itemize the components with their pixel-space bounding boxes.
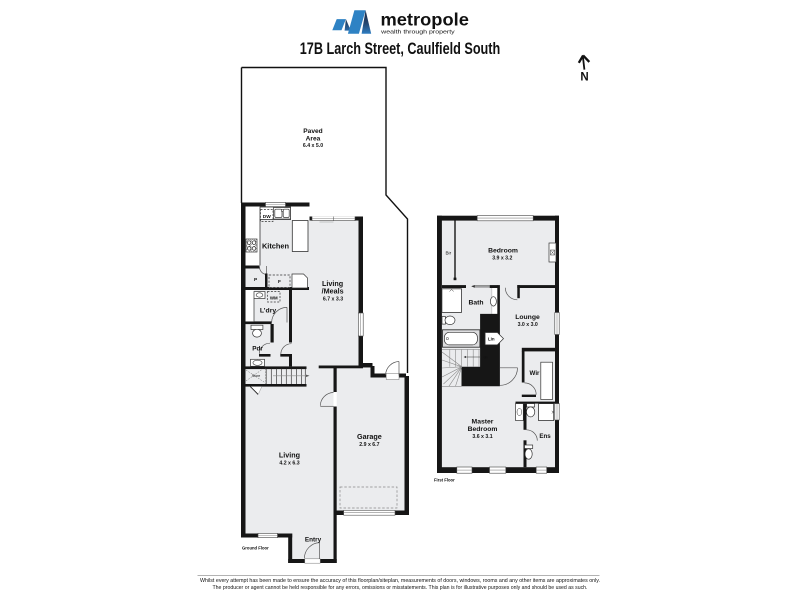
svg-text:metropole: metropole — [381, 10, 470, 30]
svg-text:Area: Area — [306, 135, 321, 142]
svg-text:wealth through property: wealth through property — [380, 30, 455, 36]
svg-text:Garage: Garage — [357, 432, 382, 441]
svg-text:DW: DW — [263, 214, 271, 220]
svg-text:Wir: Wir — [530, 370, 541, 377]
svg-text:dn: dn — [484, 356, 488, 360]
svg-text:Bedroom: Bedroom — [468, 426, 498, 433]
svg-text:Kitchen: Kitchen — [262, 242, 290, 251]
svg-text:2.9 x 6.7: 2.9 x 6.7 — [359, 442, 379, 448]
svg-text:3.0 x 3.0: 3.0 x 3.0 — [518, 322, 538, 328]
svg-text:4.2 x 6.3: 4.2 x 6.3 — [279, 461, 299, 467]
svg-text:Pdr: Pdr — [252, 346, 263, 353]
svg-text:Bath: Bath — [468, 299, 483, 306]
svg-text:Living: Living — [279, 451, 300, 460]
svg-text:3.6 x 3.1: 3.6 x 3.1 — [472, 434, 492, 440]
svg-text:Bir: Bir — [445, 250, 451, 255]
svg-text:6.4 x 5.0: 6.4 x 5.0 — [303, 143, 323, 149]
svg-text:Master: Master — [472, 419, 494, 426]
svg-text:17B Larch Street, Caulfield So: 17B Larch Street, Caulfield South — [300, 40, 501, 58]
svg-text:F: F — [278, 279, 281, 285]
svg-text:6.7 x 3.3: 6.7 x 3.3 — [323, 296, 343, 302]
svg-text:Lounge: Lounge — [515, 314, 540, 321]
svg-text:Whilst every attempt has been: Whilst every attempt has been made to en… — [200, 578, 600, 584]
svg-text:/Meals: /Meals — [322, 286, 344, 295]
svg-text:Ground Floor: Ground Floor — [242, 545, 269, 550]
svg-text:Ens: Ens — [539, 433, 551, 440]
svg-text:Paved: Paved — [303, 128, 322, 135]
svg-text:Entry: Entry — [305, 536, 322, 543]
svg-text:3.9 x 3.2: 3.9 x 3.2 — [492, 256, 512, 262]
svg-text:Store: Store — [252, 374, 261, 378]
svg-text:N: N — [580, 72, 588, 84]
svg-text:Lin: Lin — [488, 337, 495, 342]
svg-text:The producer or agent cannot b: The producer or agent cannot be held res… — [213, 585, 588, 591]
svg-text:WM: WM — [270, 295, 278, 300]
svg-text:L’dry: L’dry — [260, 308, 276, 315]
svg-text:Bedroom: Bedroom — [488, 247, 518, 254]
svg-text:First Floor: First Floor — [434, 477, 455, 482]
